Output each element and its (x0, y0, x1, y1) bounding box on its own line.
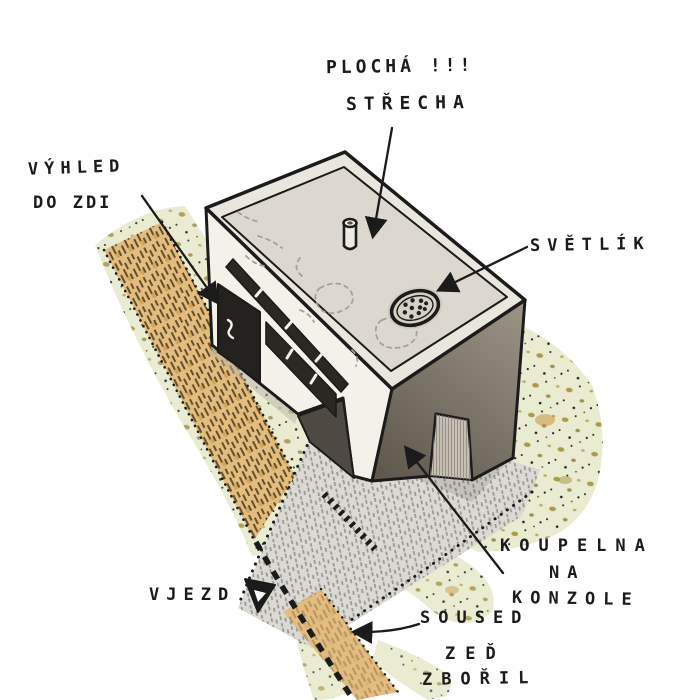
vent-pipe (344, 219, 357, 249)
leader-neighbor-wall (354, 624, 419, 632)
label-view-into-wall-line2: DO ZDI (33, 195, 112, 212)
label-bathroom-line2: NA (549, 565, 585, 582)
label-neighbor-line1: SOUSED (420, 610, 529, 627)
label-view-into-wall-line1: VÝHLED (28, 158, 126, 178)
label-entrance: VJEZD (149, 587, 235, 604)
passage-opening-right (430, 414, 472, 480)
label-bathroom-line3: KONZOLE (512, 590, 640, 609)
label-bathroom-line1: KOUPELNA (500, 538, 654, 555)
label-neighbor-line2: ZEĎ (445, 646, 506, 663)
label-neighbor-line3: ZBOŘIL (422, 670, 538, 689)
label-flat-roof-line1: PLOCHÁ !!! (326, 57, 475, 78)
sketch-page: PLOCHÁ !!! STŘECHA VÝHLED DO ZDI SVĚTLÍK… (0, 0, 700, 700)
label-flat-roof-line2: STŘECHA (346, 94, 471, 114)
label-skylight: SVĚTLÍK (530, 236, 651, 255)
